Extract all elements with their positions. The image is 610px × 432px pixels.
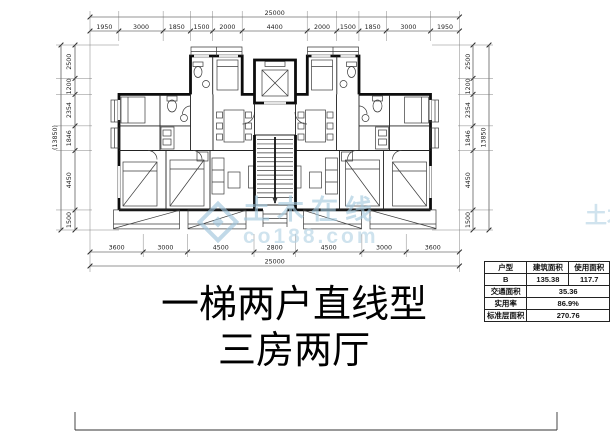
traffic-area-label: 交通面积	[485, 286, 527, 298]
dim-label: 1850	[365, 24, 381, 31]
dim-label: 2000	[219, 24, 235, 31]
dim-label: 3000	[400, 24, 416, 31]
dim-label: 4450	[66, 172, 73, 188]
floor-area-label: 标准层面积	[485, 310, 527, 322]
dim-label: 3600	[425, 245, 441, 252]
dim-label: 2500	[465, 54, 472, 70]
dim-label: 2800	[267, 245, 283, 252]
dim-label: 1200	[465, 78, 472, 94]
efficiency-value: 86.9%	[527, 298, 610, 310]
build-area-value: 135.38	[527, 274, 569, 286]
dim-label: 1950	[437, 24, 453, 31]
sheet-frame	[75, 412, 557, 430]
dim-label: 1950	[96, 24, 112, 31]
dim-label: 13850	[481, 127, 488, 147]
efficiency-label: 实用率	[485, 298, 527, 310]
dim-label: 1500	[465, 212, 472, 228]
table-row: 实用率 86.9%	[485, 298, 610, 310]
traffic-area-value: 35.36	[527, 286, 610, 298]
unit-type: B	[485, 274, 527, 286]
dim-label: 25000	[265, 259, 285, 266]
header-unit-type: 户型	[485, 262, 527, 274]
dim-label: 4500	[321, 245, 337, 252]
elevator	[255, 60, 296, 104]
dim-label: 1500	[340, 24, 356, 31]
title-line-1: 一梯两户直线型	[92, 281, 496, 327]
dim-label: 1500	[194, 24, 210, 31]
floor-area-value: 270.76	[527, 310, 610, 322]
title-line-2: 三房两厅	[92, 327, 496, 373]
use-area-value: 117.7	[569, 274, 610, 286]
drawing-sheet: 1950300018501500200044002000150018503000…	[0, 0, 610, 432]
dim-label: 2354	[66, 102, 73, 118]
area-spec-table: 户型 建筑面积 使用面积 B 135.38 117.7 交通面积 35.36 实…	[484, 261, 610, 322]
dim-label: 2500	[66, 54, 73, 70]
dim-label: 4400	[267, 24, 283, 31]
table-row: 标准层面积 270.76	[485, 310, 610, 322]
table-row: 交通面积 35.36	[485, 286, 610, 298]
dim-label: 1500	[66, 212, 73, 228]
dim-label: 1850	[169, 24, 185, 31]
dim-label: 2354	[465, 102, 472, 118]
dim-label: 3600	[109, 245, 125, 252]
drawing-title: 一梯两户直线型 三房两厅	[92, 281, 496, 373]
entrance-steps	[255, 210, 296, 227]
dim-label: 4500	[213, 245, 229, 252]
table-header-row: 户型 建筑面积 使用面积	[485, 262, 610, 274]
dim-label: 3000	[157, 245, 173, 252]
unit-right	[295, 47, 439, 229]
table-row: B 135.38 117.7	[485, 274, 610, 286]
dim-label: 25000	[265, 10, 285, 17]
dim-label: 3000	[133, 24, 149, 31]
header-use-area: 使用面积	[569, 262, 610, 274]
dim-label: 1846	[66, 130, 73, 146]
core	[255, 60, 296, 227]
dim-label: 1200	[66, 78, 73, 94]
staircase	[255, 135, 296, 210]
dim-label: (13850)	[52, 125, 59, 150]
header-build-area: 建筑面积	[527, 262, 569, 274]
dim-label: 4450	[465, 172, 472, 188]
dim-label: 2000	[314, 24, 330, 31]
dim-label: 3000	[376, 245, 392, 252]
dim-label: 1846	[465, 130, 472, 146]
unit-left	[111, 47, 255, 229]
